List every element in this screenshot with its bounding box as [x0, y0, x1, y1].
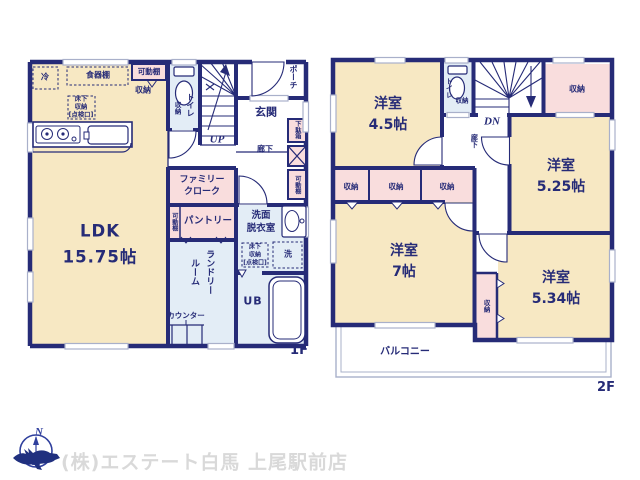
bathtub-icon — [269, 277, 305, 343]
door-arc — [169, 131, 196, 158]
toilet-icon-1f — [174, 67, 194, 105]
floor-plan-canvas: 冷 食器棚 可動棚 収納 床下 収納 [点検口] トイレ 収納 UP ポーチ 玄… — [0, 0, 640, 480]
door-arc — [252, 62, 284, 96]
kitchen-sink-icon — [84, 126, 128, 144]
door-arc — [482, 137, 510, 165]
compass-icon: N — [10, 422, 64, 478]
company-watermark: (株)エステート白馬 上尾駅前店 — [61, 448, 348, 475]
floor-plan-drawing — [0, 0, 640, 480]
stove-icon — [36, 126, 80, 143]
stairs-up-icon — [200, 62, 236, 136]
door-arc — [479, 234, 507, 262]
washbasin-icon — [282, 206, 306, 237]
kitchen-counter — [33, 122, 132, 152]
stairs-down-icon — [475, 62, 542, 115]
door-arc — [239, 176, 267, 204]
compass-n-label: N — [34, 426, 44, 438]
